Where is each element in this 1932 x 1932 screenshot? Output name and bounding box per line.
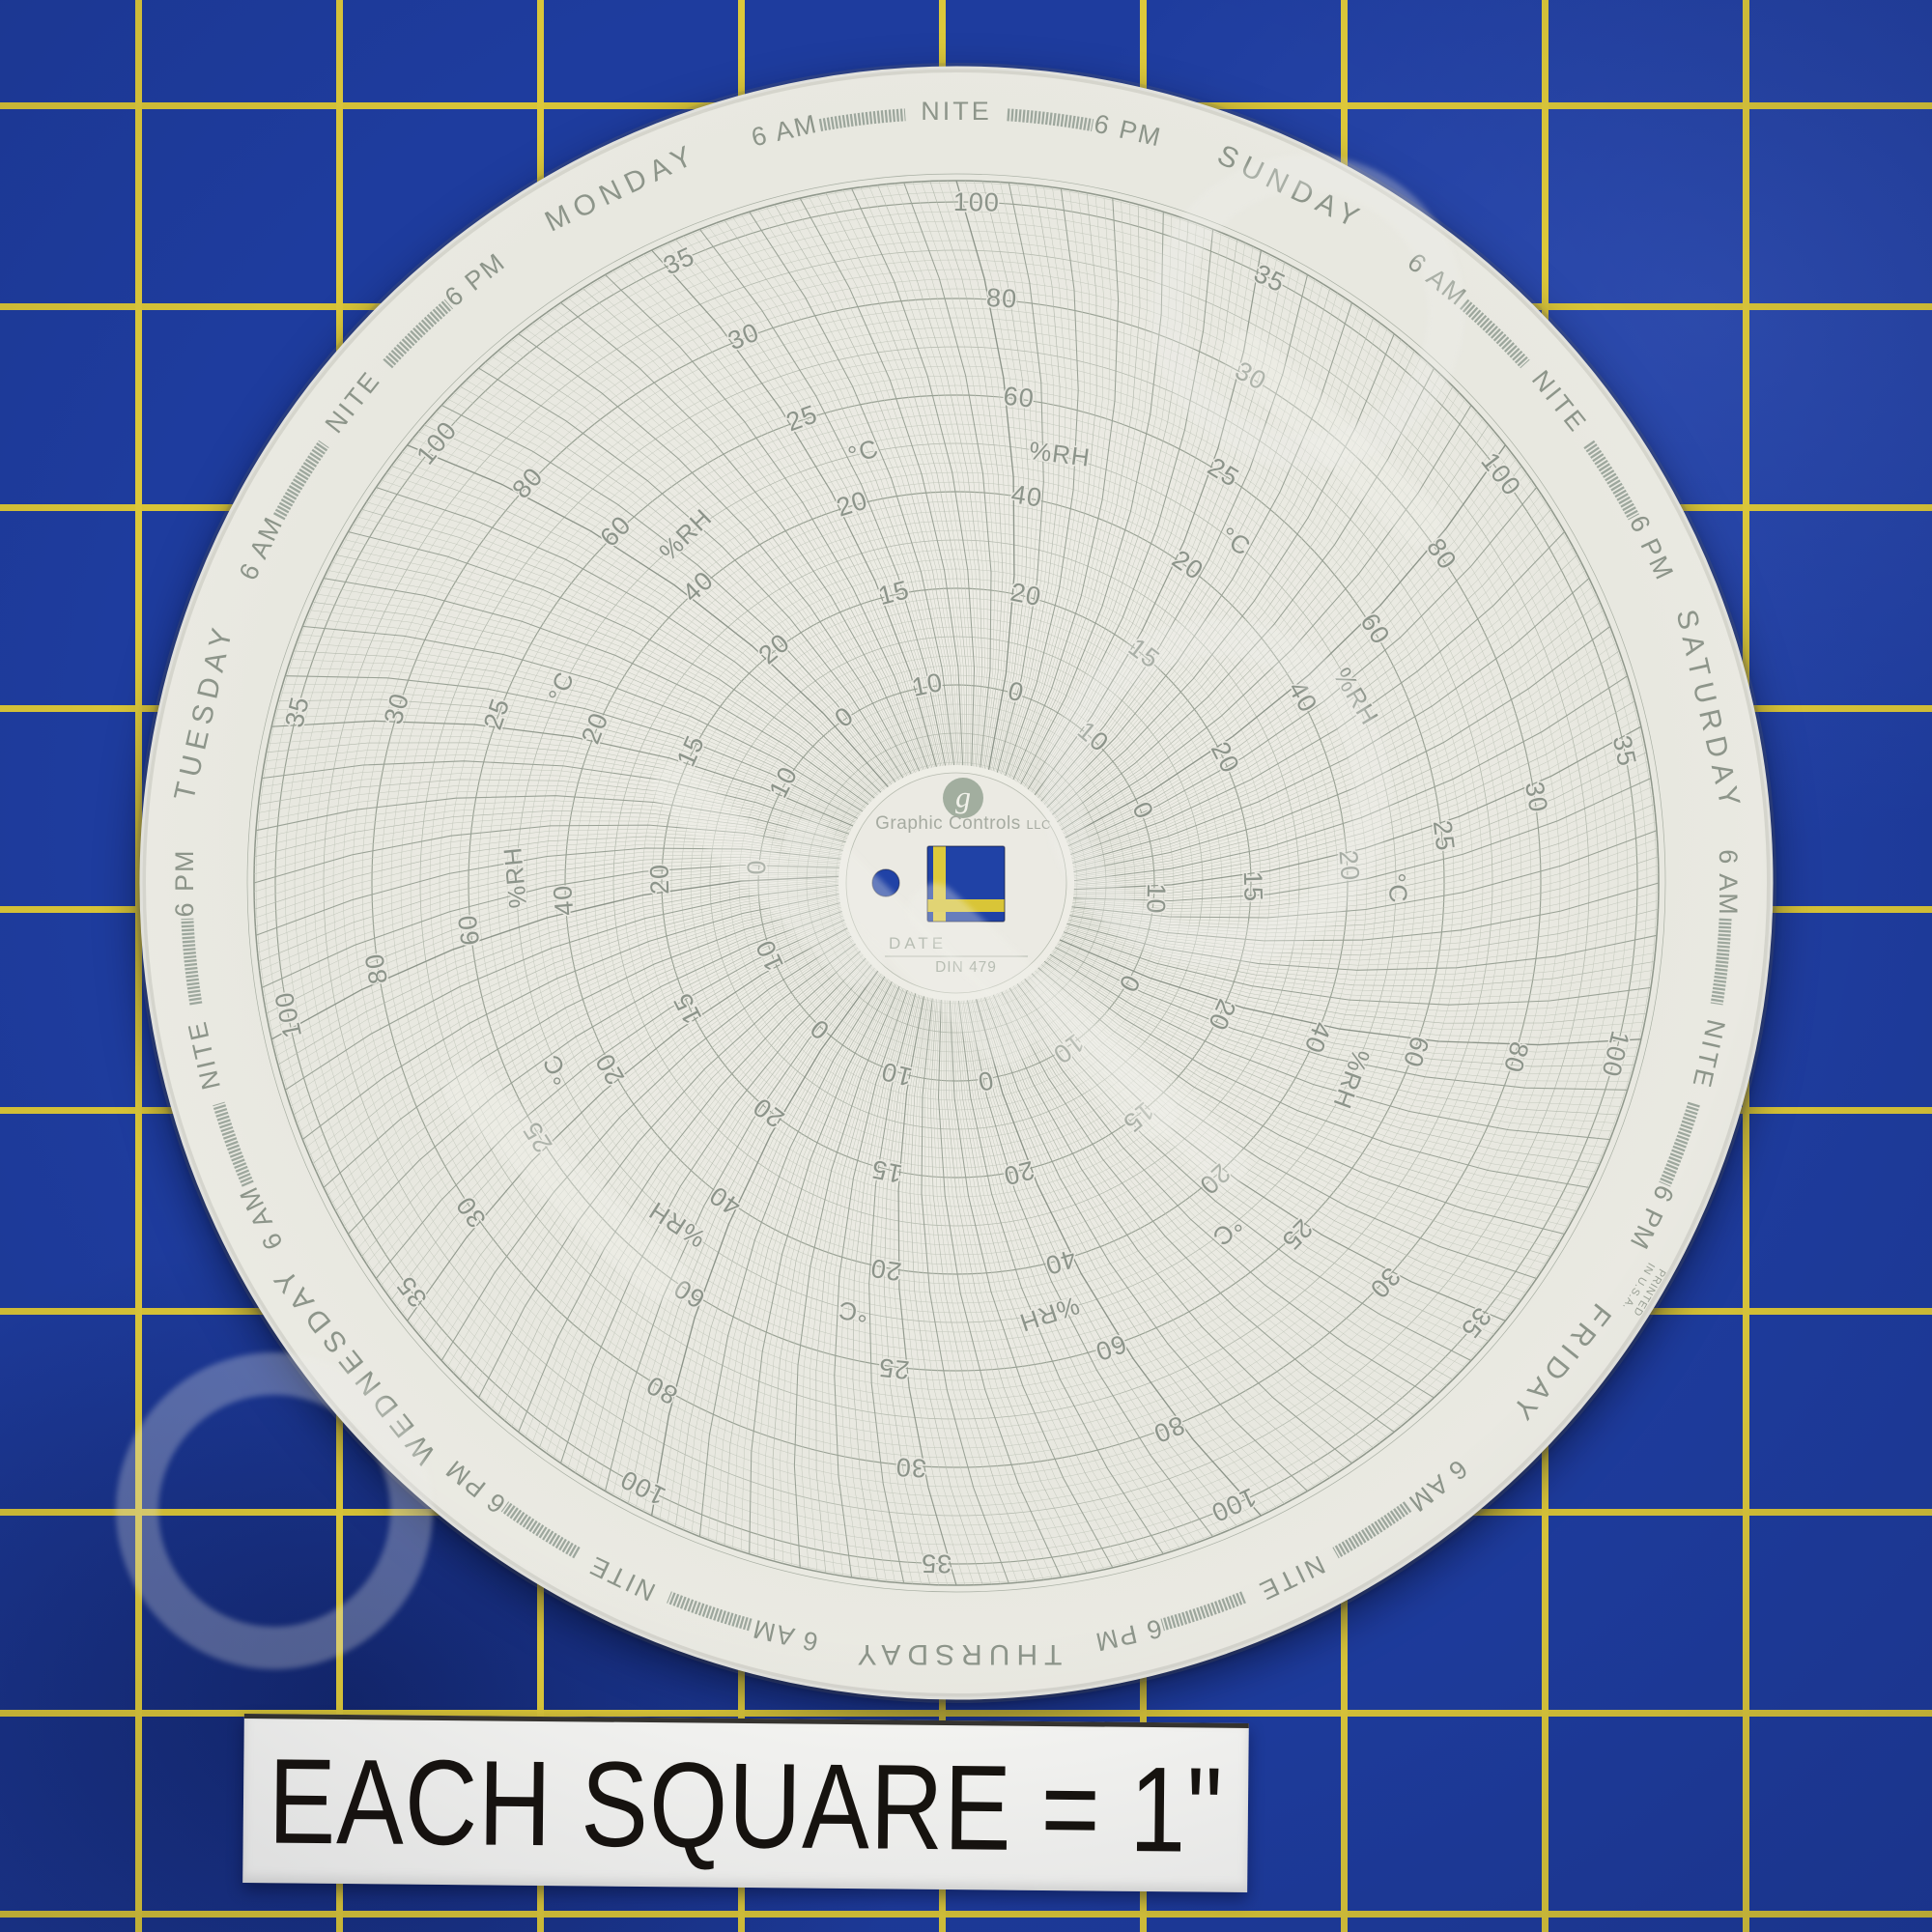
ruler-label: EACH SQUARE = 1" bbox=[242, 1714, 1249, 1892]
model-number: DIN 479 bbox=[935, 959, 997, 976]
svg-text:g: g bbox=[955, 779, 971, 813]
ruler-label-text: EACH SQUARE = 1" bbox=[268, 1731, 1224, 1880]
svg-text:100: 100 bbox=[953, 187, 1000, 217]
index-hole bbox=[872, 869, 899, 896]
svg-text:NITE: NITE bbox=[921, 97, 992, 126]
svg-text:60: 60 bbox=[1002, 382, 1036, 413]
svg-text:°C: °C bbox=[837, 1295, 870, 1328]
svg-text:THURSDAY: THURSDAY bbox=[851, 1638, 1063, 1670]
svg-text:°C: °C bbox=[1381, 872, 1413, 905]
brand-name: Graphic Controls LLC bbox=[875, 813, 1051, 834]
svg-text:40: 40 bbox=[548, 884, 579, 917]
svg-text:15: 15 bbox=[868, 1154, 904, 1189]
svg-text:20: 20 bbox=[868, 1253, 903, 1286]
center-square-hole bbox=[927, 846, 1005, 922]
svg-text:%RH: %RH bbox=[497, 845, 532, 909]
svg-text:6 AM: 6 AM bbox=[1714, 849, 1743, 917]
chart-disc: 020406080100%RH101520253035°C02040608010… bbox=[0, 0, 1932, 1932]
svg-text:30: 30 bbox=[895, 1452, 927, 1483]
svg-text:60: 60 bbox=[453, 913, 486, 947]
svg-text:30: 30 bbox=[1520, 780, 1553, 815]
svg-text:40: 40 bbox=[1009, 479, 1044, 512]
svg-text:15: 15 bbox=[1238, 870, 1268, 902]
svg-text:20: 20 bbox=[1009, 578, 1044, 612]
svg-text:80: 80 bbox=[359, 951, 393, 986]
date-field-label: DATE bbox=[889, 934, 947, 952]
svg-text:20: 20 bbox=[1334, 849, 1365, 882]
svg-text:20: 20 bbox=[644, 864, 674, 895]
hub: gGraphic Controls LLCDATEDIN 479 bbox=[846, 773, 1066, 993]
svg-text:25: 25 bbox=[877, 1352, 911, 1384]
svg-text:25: 25 bbox=[1428, 819, 1461, 853]
photo-scene: 020406080100%RH101520253035°C02040608010… bbox=[0, 0, 1932, 1932]
svg-text:0: 0 bbox=[742, 859, 771, 875]
svg-text:10: 10 bbox=[1141, 883, 1171, 915]
svg-text:80: 80 bbox=[985, 283, 1018, 314]
svg-text:6 PM: 6 PM bbox=[170, 848, 199, 917]
svg-text:35: 35 bbox=[921, 1548, 952, 1577]
